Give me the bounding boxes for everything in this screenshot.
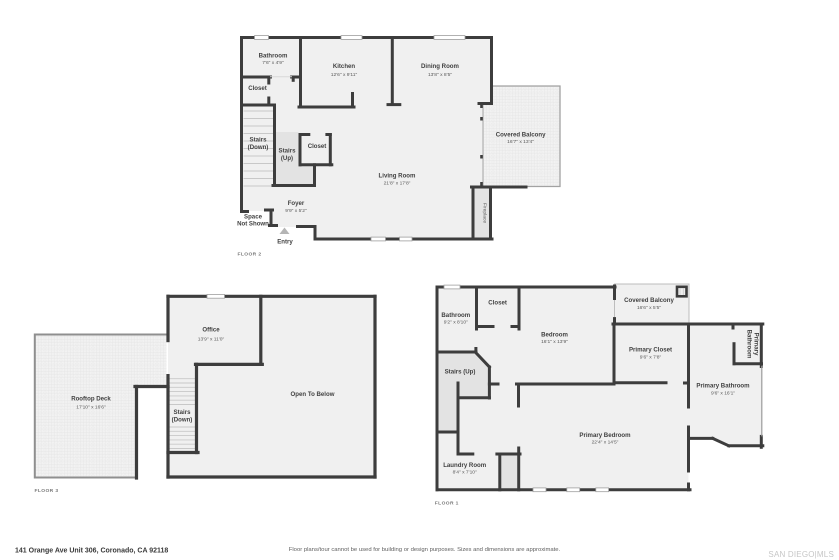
svg-text:(Down): (Down) bbox=[248, 144, 269, 151]
svg-text:FLOOR 3: FLOOR 3 bbox=[35, 488, 59, 494]
svg-text:Space: Space bbox=[244, 214, 263, 221]
svg-text:Not Shown: Not Shown bbox=[237, 221, 269, 228]
svg-text:16'1" x 13'9": 16'1" x 13'9" bbox=[541, 339, 568, 345]
svg-text:Primary Bedroom: Primary Bedroom bbox=[579, 432, 631, 439]
svg-text:Rooftop Deck: Rooftop Deck bbox=[71, 396, 111, 403]
svg-text:SAN DIEGO|MLS: SAN DIEGO|MLS bbox=[768, 550, 834, 559]
svg-text:FLOOR 1: FLOOR 1 bbox=[435, 501, 459, 507]
svg-text:16'6" x 5'5": 16'6" x 5'5" bbox=[637, 305, 661, 311]
svg-text:Stairs: Stairs bbox=[174, 409, 192, 416]
svg-text:9'6" x 16'1": 9'6" x 16'1" bbox=[711, 391, 735, 397]
svg-text:Covered Balcony: Covered Balcony bbox=[496, 132, 546, 139]
svg-text:Foyer: Foyer bbox=[288, 200, 305, 207]
svg-text:FLOOR 2: FLOOR 2 bbox=[238, 252, 262, 258]
svg-text:Closet: Closet bbox=[488, 300, 507, 307]
svg-text:Entry: Entry bbox=[277, 239, 293, 246]
svg-text:7'6" x 4'9": 7'6" x 4'9" bbox=[262, 60, 284, 66]
svg-text:Office: Office bbox=[202, 327, 220, 334]
svg-text:Living Room: Living Room bbox=[379, 173, 416, 180]
svg-text:8'4" x 7'10": 8'4" x 7'10" bbox=[453, 470, 477, 476]
svg-text:Stairs: Stairs bbox=[250, 137, 268, 144]
svg-text:Closet: Closet bbox=[248, 85, 267, 92]
svg-text:13'8" x 8'5": 13'8" x 8'5" bbox=[428, 72, 452, 78]
svg-text:Fireplace: Fireplace bbox=[482, 203, 488, 223]
svg-text:17'10" x 16'6": 17'10" x 16'6" bbox=[76, 405, 106, 411]
svg-text:Open To Below: Open To Below bbox=[291, 391, 335, 398]
svg-text:21'8" x 17'8": 21'8" x 17'8" bbox=[384, 180, 411, 186]
svg-text:22'4" x 14'5": 22'4" x 14'5" bbox=[592, 440, 619, 446]
svg-text:Primary: Primary bbox=[753, 333, 760, 356]
svg-text:Closet: Closet bbox=[308, 143, 327, 150]
svg-text:9'6" x 7'8": 9'6" x 7'8" bbox=[640, 355, 662, 361]
svg-text:Stairs: Stairs bbox=[279, 148, 297, 155]
svg-text:Stairs (Up): Stairs (Up) bbox=[445, 369, 476, 376]
svg-text:Laundry Room: Laundry Room bbox=[443, 462, 487, 469]
svg-text:Kitchen: Kitchen bbox=[333, 63, 356, 70]
svg-text:Bathroom: Bathroom bbox=[746, 330, 753, 359]
svg-text:12'6" x 9'11": 12'6" x 9'11" bbox=[331, 72, 358, 78]
svg-text:13'9" x 11'0": 13'9" x 11'0" bbox=[198, 337, 225, 343]
svg-text:Dining Room: Dining Room bbox=[421, 63, 459, 70]
svg-text:Bathroom: Bathroom bbox=[259, 53, 288, 60]
svg-text:9'2" x 8'10": 9'2" x 8'10" bbox=[444, 320, 468, 326]
svg-text:Floor plans/tour cannot be use: Floor plans/tour cannot be used for buil… bbox=[289, 547, 561, 553]
svg-text:(Up): (Up) bbox=[281, 155, 293, 162]
svg-text:16'7" x 13'4": 16'7" x 13'4" bbox=[507, 139, 534, 145]
svg-text:(Down): (Down) bbox=[172, 417, 193, 424]
svg-text:Primary Bathroom: Primary Bathroom bbox=[696, 383, 750, 390]
svg-text:9'9" x 5'2": 9'9" x 5'2" bbox=[285, 208, 307, 214]
svg-text:Covered Balcony: Covered Balcony bbox=[624, 297, 674, 304]
svg-text:Primary Closet: Primary Closet bbox=[629, 347, 672, 354]
svg-text:Bedroom: Bedroom bbox=[541, 332, 568, 339]
svg-text:Bathroom: Bathroom bbox=[441, 312, 470, 319]
svg-text:141 Orange Ave Unit 306, Coron: 141 Orange Ave Unit 306, Coronado, CA 92… bbox=[15, 548, 168, 555]
